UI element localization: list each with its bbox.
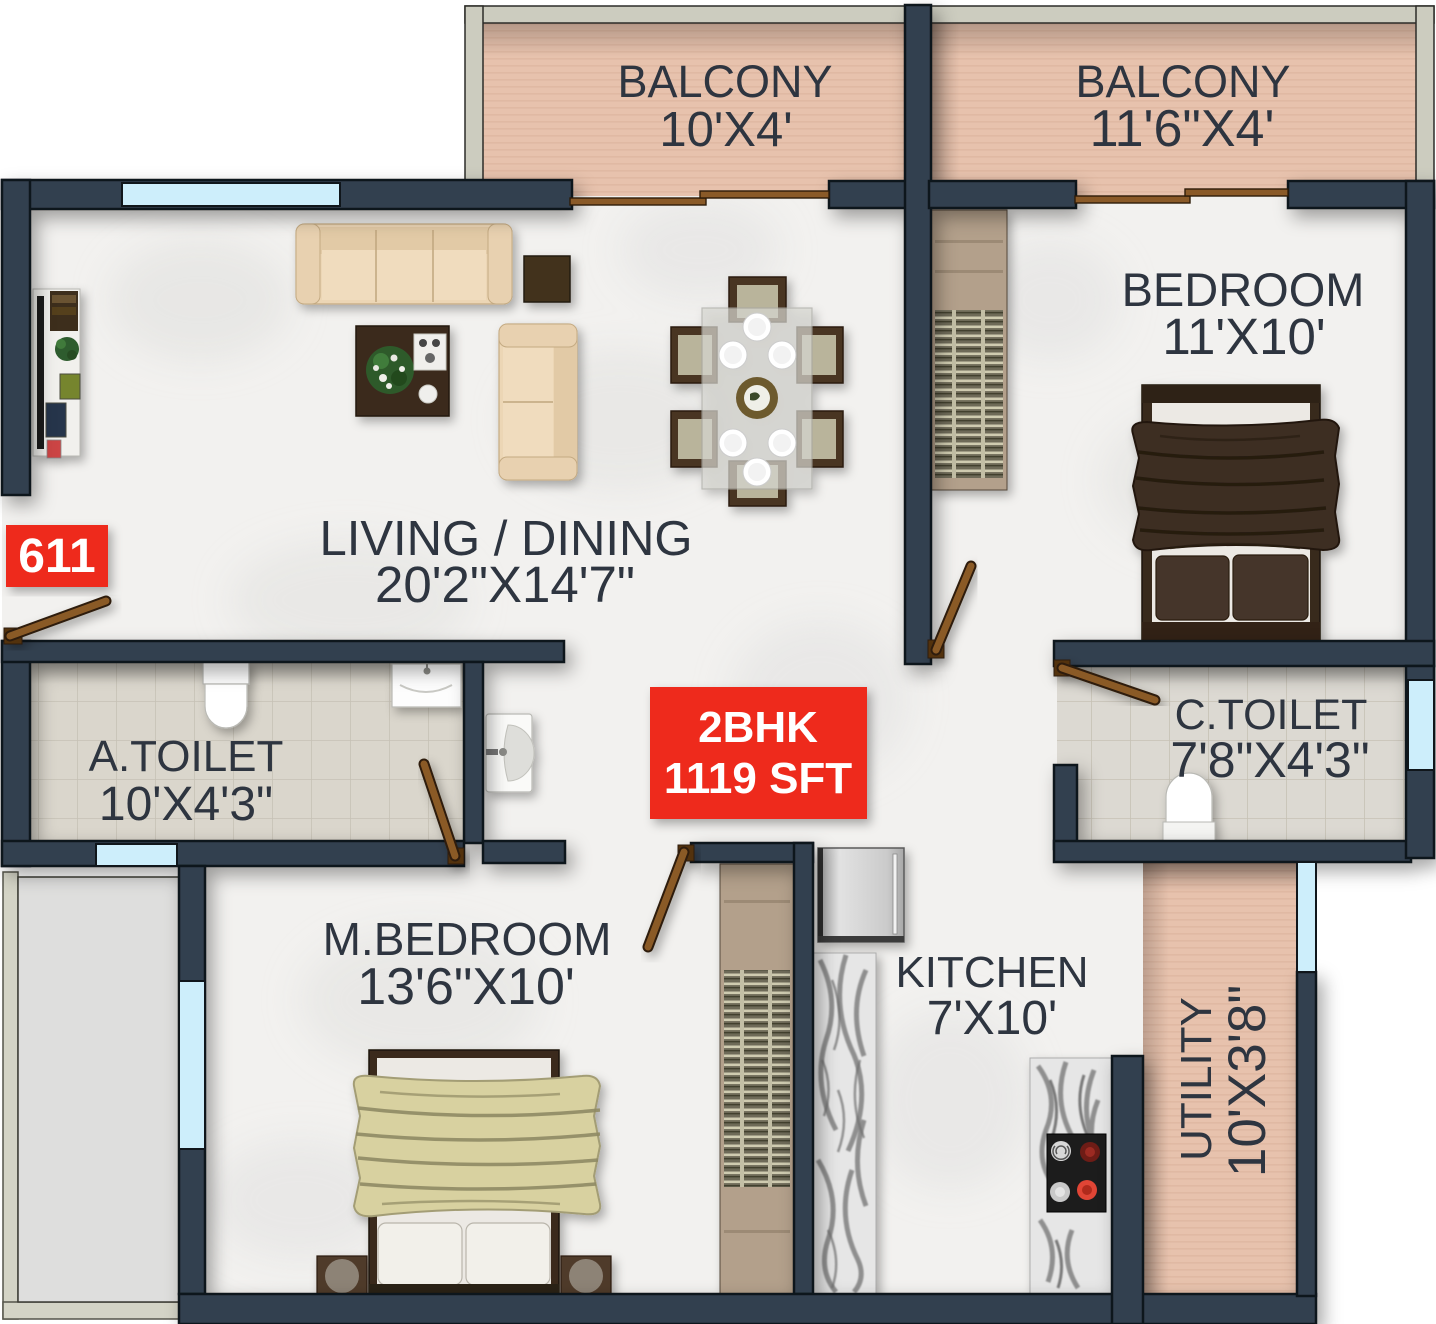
svg-text:10'X4'3": 10'X4'3" [99,778,273,831]
svg-text:7'8"X4'3": 7'8"X4'3" [1170,732,1369,788]
svg-text:A.TOILET: A.TOILET [89,732,284,781]
svg-text:11'6"X4': 11'6"X4' [1090,100,1275,158]
svg-text:1119 SFT: 1119 SFT [664,754,852,803]
svg-text:UTILITY: UTILITY [1172,997,1221,1161]
svg-text:13'6"X10': 13'6"X10' [357,958,575,1016]
svg-text:10'X3'8": 10'X3'8" [1218,985,1277,1177]
svg-text:611: 611 [18,530,95,583]
svg-text:BALCONY: BALCONY [617,56,832,107]
svg-text:10'X4': 10'X4' [659,103,792,157]
svg-text:KITCHEN: KITCHEN [895,948,1088,997]
svg-text:20'2"X14'7": 20'2"X14'7" [375,556,635,613]
svg-text:7'X10': 7'X10' [927,992,1057,1045]
svg-text:11'X10': 11'X10' [1162,308,1325,365]
svg-text:2BHK: 2BHK [698,703,818,752]
